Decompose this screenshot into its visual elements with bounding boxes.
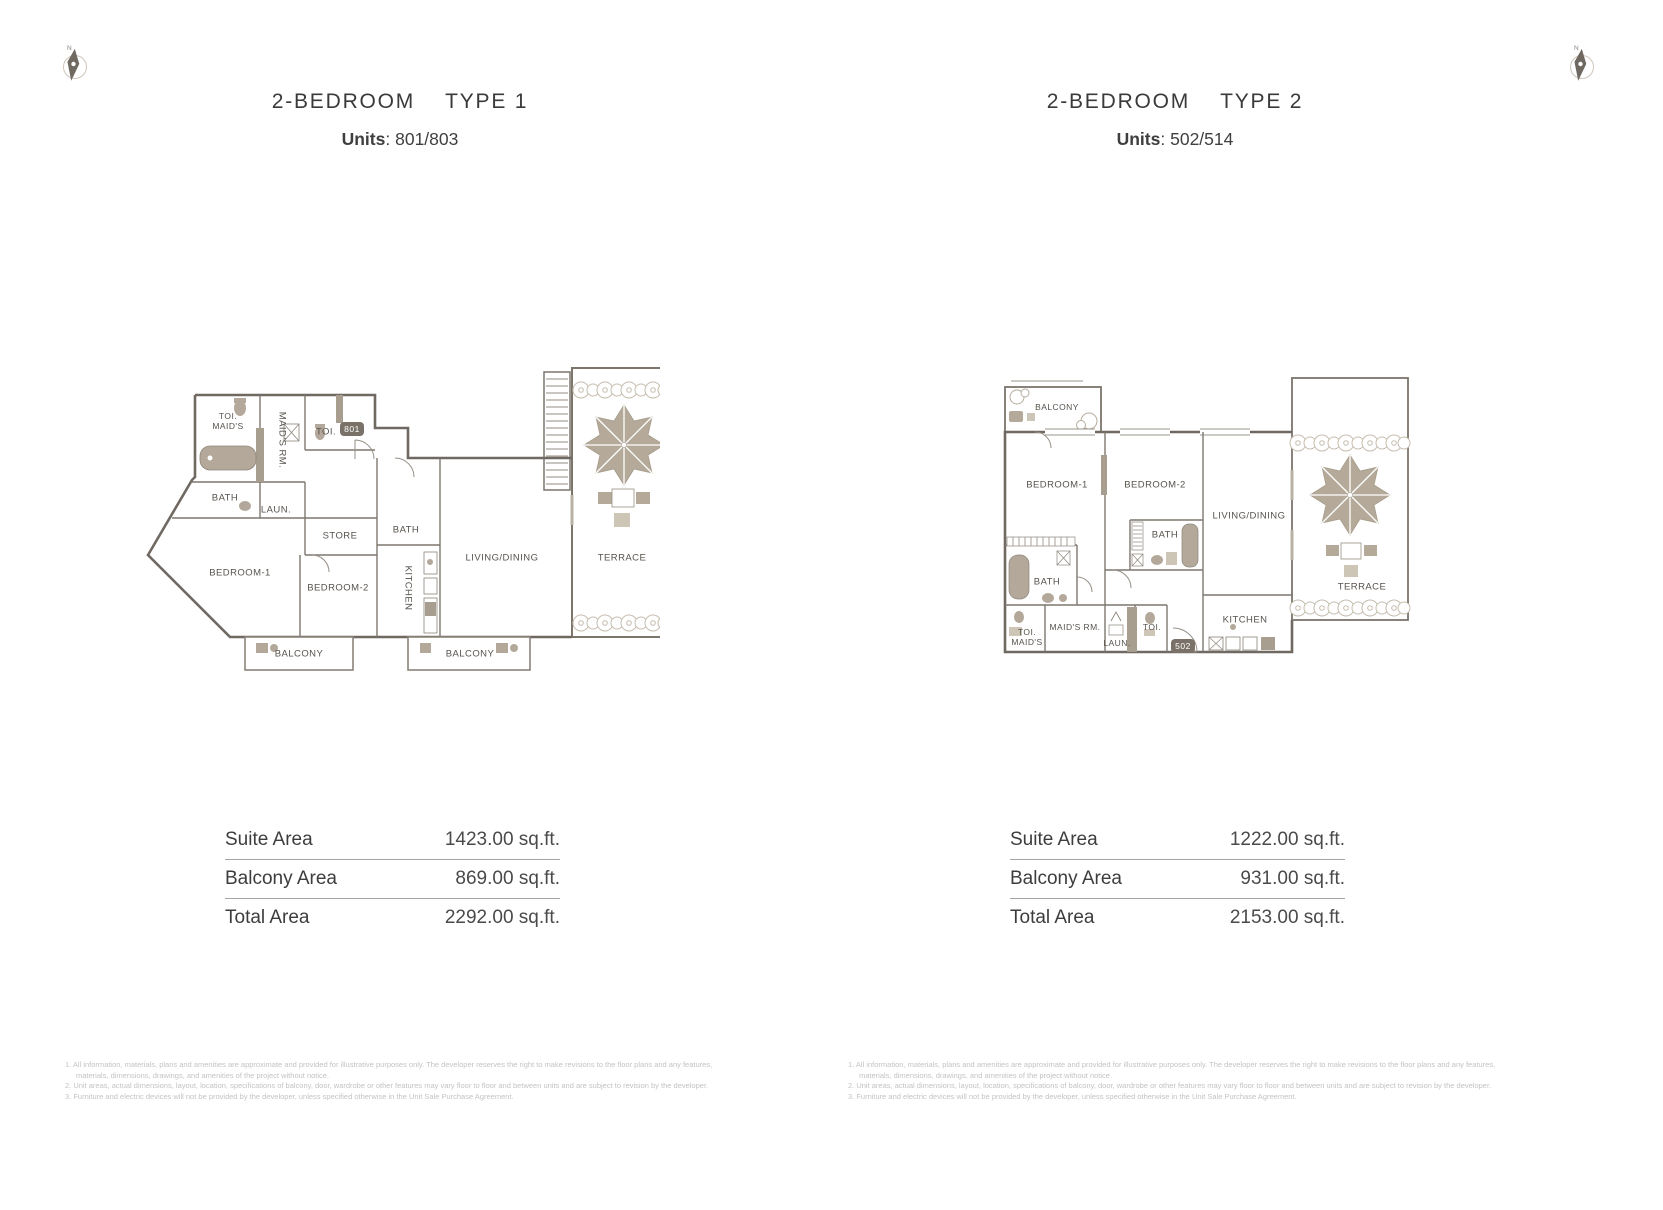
floorplan-brochure-page: { "compass": { "north": "N" }, "plan1": … xyxy=(0,0,1663,1210)
pergola-strip xyxy=(544,372,570,490)
plan2-disclaimer: 1. All information, materials, plans and… xyxy=(848,1060,1508,1102)
plan2-title-name: 2-BEDROOM xyxy=(1047,90,1190,113)
flower-border-bottom xyxy=(573,615,660,631)
disclaimer-line: 3. Furniture and electric devices will n… xyxy=(848,1092,1508,1103)
room-label-maids-room: MAID'S RM. xyxy=(1050,622,1101,632)
suite-area-label: Suite Area xyxy=(225,829,313,851)
room-label-maids-toilet: TOI.MAID'S xyxy=(997,628,1057,648)
table-row: Balcony Area 869.00 sq.ft. xyxy=(225,860,560,899)
room-label-bath1: BATH xyxy=(1034,577,1060,588)
table-row: Suite Area 1423.00 sq.ft. xyxy=(225,821,560,860)
room-label-kitchen: KITCHEN xyxy=(1223,615,1268,626)
room-label-store: STORE xyxy=(323,531,358,542)
room-label-toilet: TOI. xyxy=(316,427,336,438)
room-label-laundry: LAUN. xyxy=(261,505,291,516)
disclaimer-line: 3. Furniture and electric devices will n… xyxy=(65,1092,725,1103)
suite-area-value: 1222.00 sq.ft. xyxy=(1230,829,1345,851)
room-label-living-dining: LIVING/DINING xyxy=(1213,511,1286,522)
room-label-living-dining: LIVING/DINING xyxy=(466,553,539,564)
room-label-bath: BATH xyxy=(212,493,238,504)
room-label-balcony: BALCONY xyxy=(1035,402,1079,412)
room-label-bath2: BATH xyxy=(393,525,419,536)
umbrella-icon xyxy=(1310,455,1390,535)
total-area-value: 2153.00 sq.ft. xyxy=(1230,907,1345,929)
plan2-title-type: TYPE 2 xyxy=(1220,90,1303,113)
plan2-area-table: Suite Area 1222.00 sq.ft. Balcony Area 9… xyxy=(1010,821,1345,937)
plan2-title: 2-BEDROOMTYPE 2 xyxy=(925,90,1425,114)
table-row: Balcony Area 931.00 sq.ft. xyxy=(1010,860,1345,899)
table-row: Suite Area 1222.00 sq.ft. xyxy=(1010,821,1345,860)
disclaimer-line: 1. All information, materials, plans and… xyxy=(848,1060,1508,1081)
room-label-bedroom2: BEDROOM-2 xyxy=(307,583,369,594)
room-label-maids-toilet: TOI.MAID'S xyxy=(198,412,258,432)
unit-number-badge: 801 xyxy=(340,422,364,436)
disclaimer-line: 1. All information, materials, plans and… xyxy=(65,1060,725,1081)
plan1-title-type: TYPE 1 xyxy=(445,90,528,113)
terrace-area xyxy=(544,368,660,637)
table-row: Total Area 2292.00 sq.ft. xyxy=(225,899,560,937)
bath1-fixtures xyxy=(1007,537,1075,603)
room-label-terrace: TERRACE xyxy=(1338,582,1387,593)
floor-plan-type2: BALCONY BEDROOM-1 BEDROOM-2 BATH BATH TO… xyxy=(945,355,1425,665)
room-label-laundry: LAUN. xyxy=(1103,638,1130,648)
bathtub-icon xyxy=(200,446,256,470)
disclaimer-line: 2. Unit areas, actual dimensions, layout… xyxy=(65,1081,725,1092)
plan1-title: 2-BEDROOMTYPE 1 xyxy=(140,90,660,114)
compass-icon: N xyxy=(1562,40,1602,86)
kitchen-counter xyxy=(1209,624,1275,650)
flower-border-top xyxy=(1290,435,1410,451)
room-label-bedroom1: BEDROOM-1 xyxy=(209,568,271,579)
room-label-bath2: BATH xyxy=(1152,530,1178,541)
door-swings xyxy=(312,440,414,572)
room-label-bedroom1: BEDROOM-1 xyxy=(1026,480,1088,491)
plan1-title-name: 2-BEDROOM xyxy=(272,90,415,113)
room-label-bedroom2: BEDROOM-2 xyxy=(1124,480,1186,491)
svg-text:N: N xyxy=(1574,45,1579,52)
floor-plan-type1-drawing xyxy=(140,340,660,675)
window-marks xyxy=(1045,429,1250,436)
room-label-balcony-right: BALCONY xyxy=(446,649,495,660)
table-row: Total Area 2153.00 sq.ft. xyxy=(1010,899,1345,937)
floor-plan-type1: TOI.MAID'S MAID'S RM. TOI. BATH LAUN. ST… xyxy=(140,340,660,675)
suite-area-value: 1423.00 sq.ft. xyxy=(445,829,560,851)
unit-number-badge: 502 xyxy=(1171,639,1195,653)
compass-north-letter: N xyxy=(67,45,72,52)
total-area-label: Total Area xyxy=(225,907,310,929)
room-label-terrace: TERRACE xyxy=(598,553,647,564)
balcony-area-value: 869.00 sq.ft. xyxy=(455,868,560,890)
plan1-units: Units: 801/803 xyxy=(140,129,660,150)
flower-border-top xyxy=(573,382,660,398)
balcony-area-label: Balcony Area xyxy=(225,868,337,890)
plan1-area-table: Suite Area 1423.00 sq.ft. Balcony Area 8… xyxy=(225,821,560,937)
total-area-label: Total Area xyxy=(1010,907,1095,929)
total-area-value: 2292.00 sq.ft. xyxy=(445,907,560,929)
room-label-maids-room: MAID'S RM. xyxy=(277,412,288,468)
plan2-units: Units: 502/514 xyxy=(925,129,1425,150)
floor-plan-type2-drawing xyxy=(945,355,1425,665)
disclaimer-line: 2. Unit areas, actual dimensions, layout… xyxy=(848,1081,1508,1092)
room-label-toilet: TOI. xyxy=(1143,622,1161,632)
kitchen-counter xyxy=(424,552,437,633)
balcony-area-value: 931.00 sq.ft. xyxy=(1240,868,1345,890)
room-label-balcony-left: BALCONY xyxy=(275,649,324,660)
room-label-kitchen: KITCHEN xyxy=(403,566,414,611)
balcony-area-label: Balcony Area xyxy=(1010,868,1122,890)
flower-border-bottom xyxy=(1290,600,1410,616)
plan1-disclaimer: 1. All information, materials, plans and… xyxy=(65,1060,725,1102)
compass-icon: N xyxy=(55,40,95,86)
suite-area-label: Suite Area xyxy=(1010,829,1098,851)
